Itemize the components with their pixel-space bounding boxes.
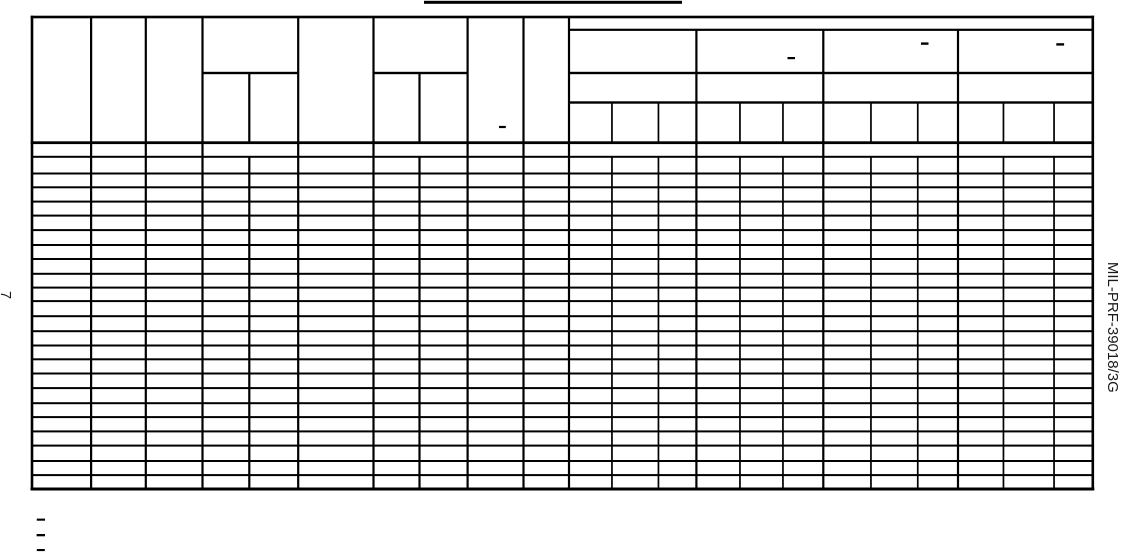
- svg-text:MIL-PRF-39018/3G: MIL-PRF-39018/3G: [1104, 262, 1121, 393]
- svg-text:7: 7: [0, 291, 13, 299]
